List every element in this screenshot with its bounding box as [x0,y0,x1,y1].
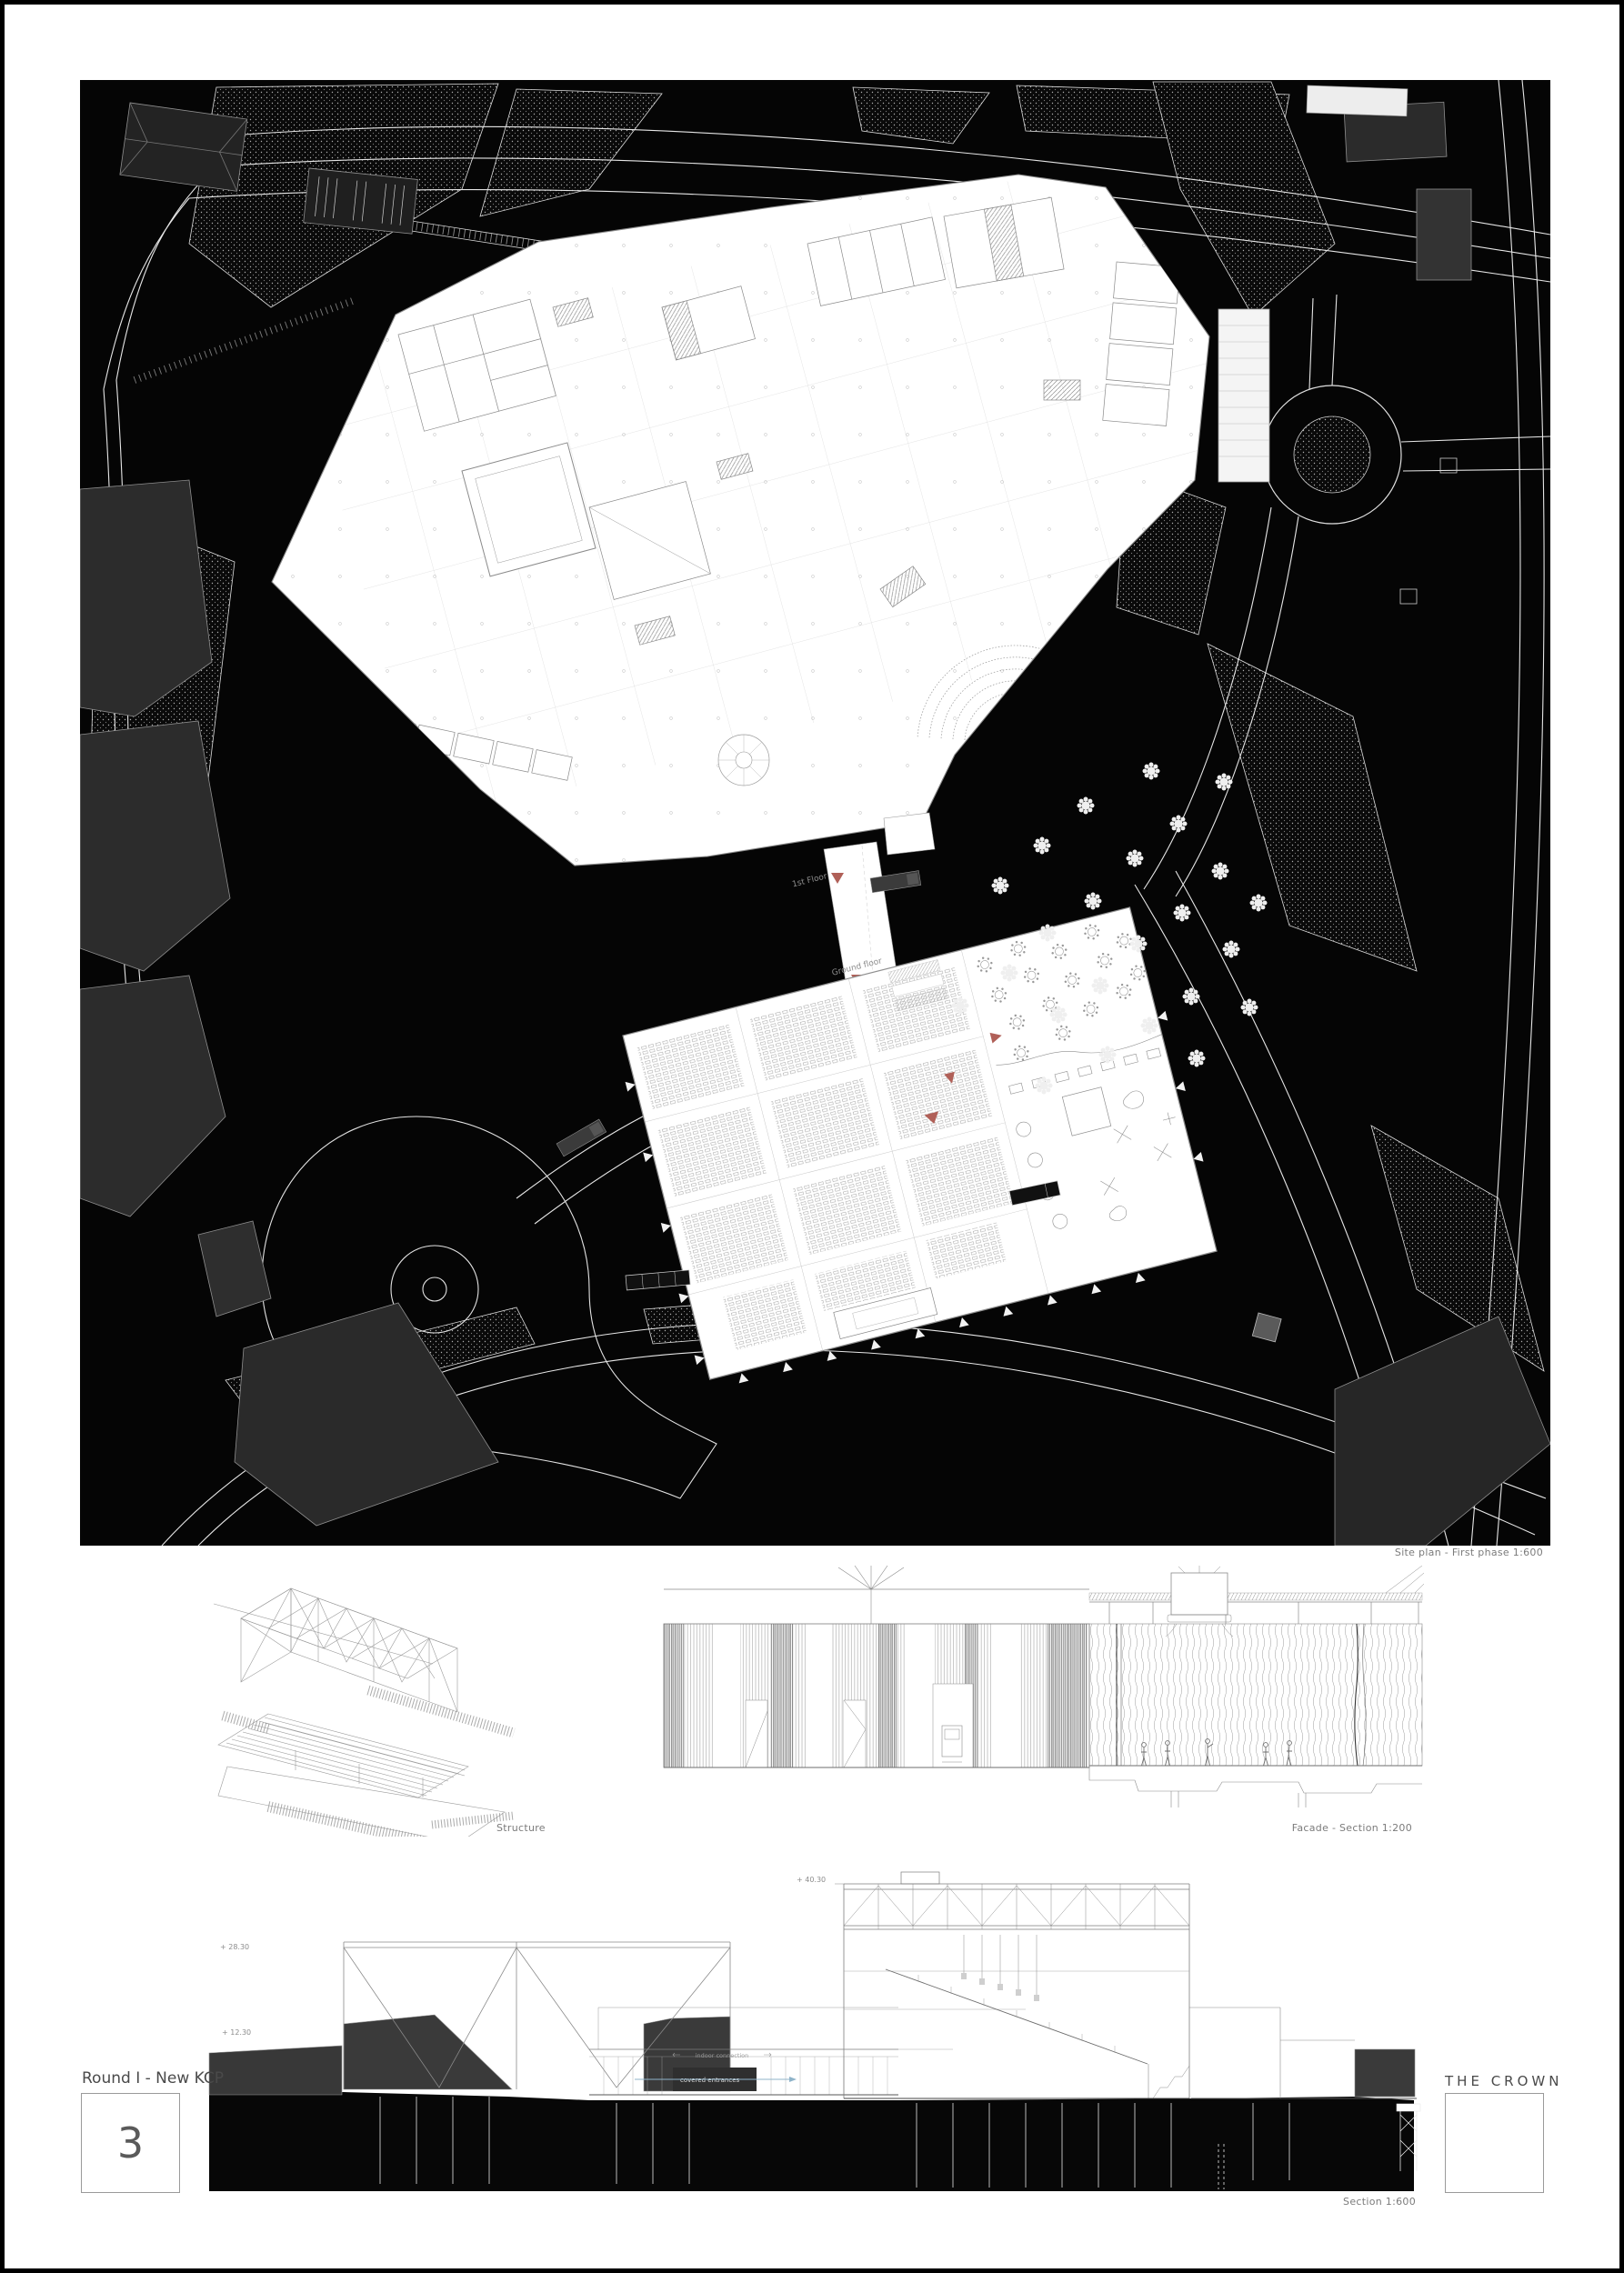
facade-right-section [1089,1566,1424,1807]
existing-buildings-cut: + 28.30 + 12.30 [209,1942,730,2095]
site-plan-drawing: 1st Floor Ground floor [80,80,1550,1546]
presentation-board: 1st Floor Ground floor [0,0,1624,2273]
middle-halls: indoor connection covered entrances [589,2008,898,2095]
main-hall-section: + 40.30 [797,1872,1189,2098]
title-box [1445,2093,1544,2193]
round-plaza [718,735,769,786]
sheet-number-box: 3 [81,2093,180,2193]
level-mid-label: + 28.30 [220,1943,249,1951]
project-label: Round I - New KCP [82,2069,224,2088]
section-caption: Section 1:600 [1143,2196,1416,2208]
level-low-label: + 12.30 [222,2028,251,2037]
facade-caption: Facade - Section 1:200 [1139,1822,1412,1834]
ground-mass [209,2092,1414,2191]
structure-axonometric [214,1577,559,1837]
covered-entrances-label: covered entrances [680,2077,740,2084]
facade-left [664,1566,1089,1767]
level-top-label: + 40.30 [797,1876,826,1884]
facade-drawing [662,1566,1424,1811]
indoor-connection-label: indoor connection [696,2052,749,2059]
site-plan-caption: Site plan - First phase 1:600 [1173,1547,1543,1558]
section-drawing: + 28.30 + 12.30 indoor connection covere… [207,1871,1428,2203]
project-title: THE CROWN [1445,2073,1552,2089]
sheet-number: 3 [117,2118,144,2168]
structure-caption: Structure [496,1822,546,1834]
